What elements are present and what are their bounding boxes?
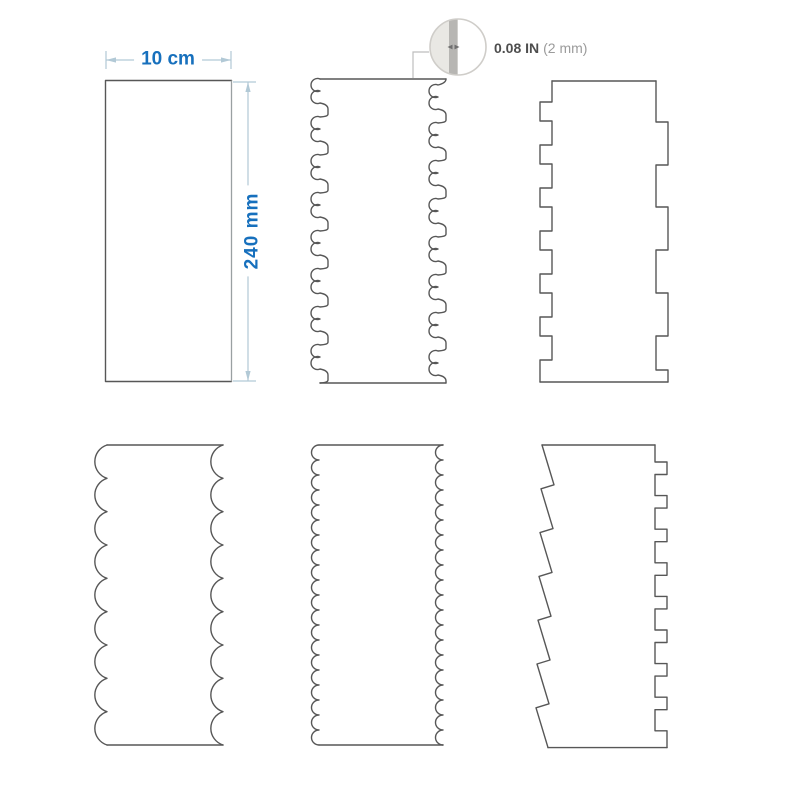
scraper-wave-comb bbox=[311, 79, 446, 384]
scraper-small-scallop-comb bbox=[312, 445, 443, 745]
scraper-square-tooth-comb bbox=[540, 81, 668, 382]
thickness-label: 0.08 IN(2 mm) bbox=[494, 40, 587, 56]
scraper-sawtooth-comb bbox=[536, 445, 667, 748]
callout-leader-line bbox=[413, 52, 429, 78]
thickness-callout bbox=[413, 19, 486, 78]
cake-scraper-diagram: 10 cm 240 mm 0.08 IN(2 mm) bbox=[0, 0, 800, 800]
thickness-value-metric: (2 mm) bbox=[543, 40, 587, 56]
thickness-value: 0.08 IN bbox=[494, 40, 539, 56]
width-dimension-label: 10 cm bbox=[134, 50, 202, 71]
scraper-large-scallop-comb bbox=[95, 445, 223, 745]
diagram-artwork bbox=[0, 0, 800, 800]
scraper-plain-rectangle bbox=[106, 81, 232, 382]
height-dimension-label: 240 mm bbox=[243, 186, 264, 277]
